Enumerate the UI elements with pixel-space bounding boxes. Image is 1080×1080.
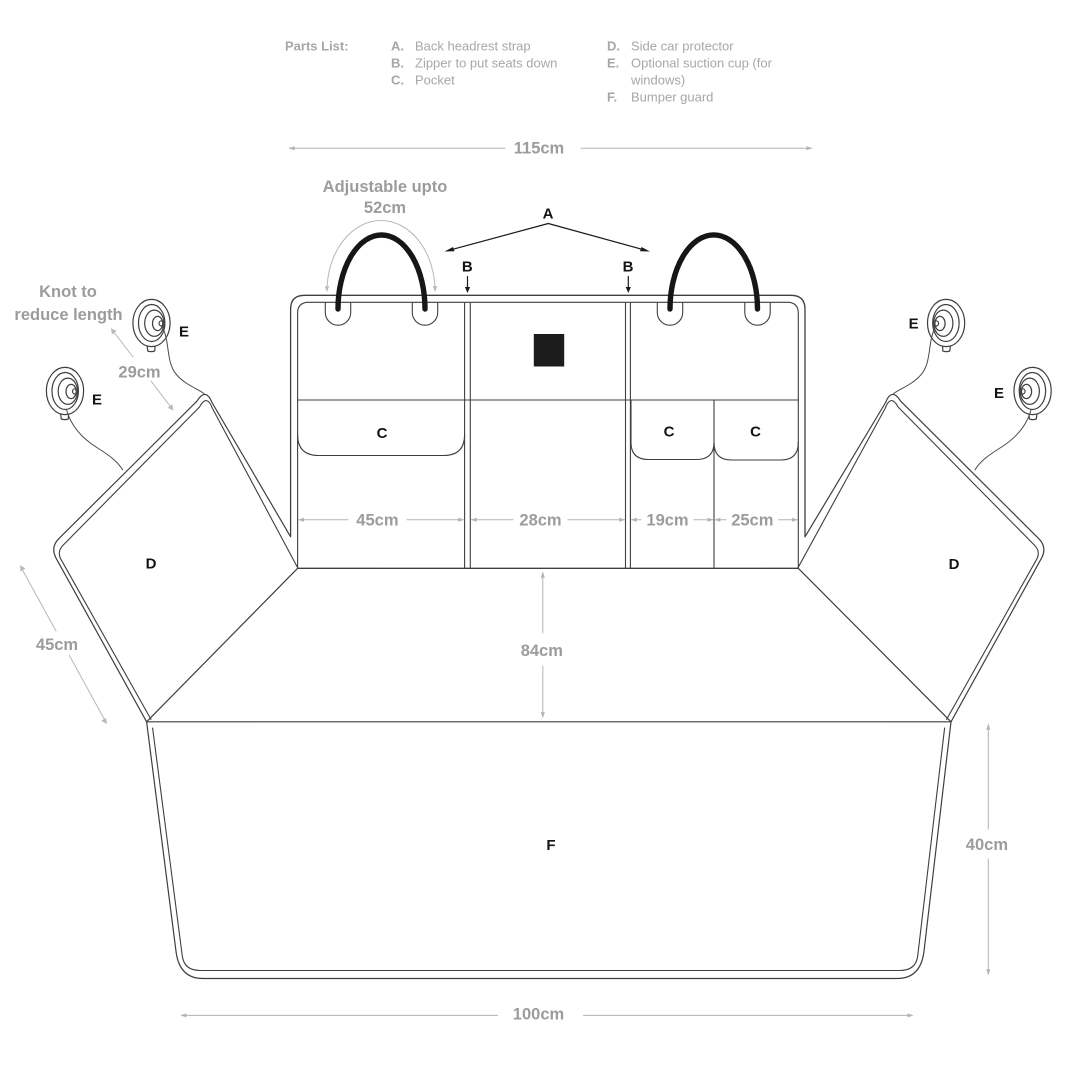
svg-text:Bumper guard: Bumper guard (631, 90, 713, 105)
svg-text:C.: C. (391, 73, 404, 88)
svg-text:Optional suction cup (for: Optional suction cup (for (631, 56, 773, 71)
svg-text:115cm: 115cm (514, 139, 564, 157)
svg-text:E.: E. (607, 56, 619, 71)
svg-text:E: E (92, 392, 102, 409)
svg-text:Side car protector: Side car protector (631, 39, 734, 54)
svg-text:Adjustable upto: Adjustable upto (323, 178, 448, 196)
svg-text:Back headrest strap: Back headrest strap (415, 39, 531, 54)
svg-text:E: E (994, 385, 1004, 402)
svg-text:Pocket: Pocket (415, 73, 455, 88)
svg-text:19cm: 19cm (646, 512, 688, 530)
svg-text:Knot to: Knot to (39, 283, 97, 301)
svg-text:A: A (543, 206, 554, 223)
svg-text:F.: F. (607, 90, 617, 105)
svg-text:C: C (750, 424, 761, 441)
svg-text:D.: D. (607, 39, 620, 54)
svg-text:E: E (909, 316, 919, 333)
svg-text:Parts List:: Parts List: (285, 39, 349, 54)
svg-text:D: D (146, 556, 157, 573)
svg-text:28cm: 28cm (519, 512, 561, 530)
svg-text:C: C (377, 425, 388, 442)
svg-text:40cm: 40cm (966, 836, 1008, 854)
svg-text:29cm: 29cm (118, 363, 160, 381)
svg-text:B.: B. (391, 56, 404, 71)
svg-text:B: B (623, 259, 634, 276)
svg-text:84cm: 84cm (521, 642, 563, 660)
svg-text:A.: A. (391, 39, 404, 54)
svg-text:52cm: 52cm (364, 199, 406, 217)
svg-text:D: D (949, 556, 960, 573)
svg-text:E: E (179, 324, 189, 341)
svg-text:100cm: 100cm (513, 1006, 564, 1024)
svg-text:F: F (546, 837, 555, 854)
svg-text:25cm: 25cm (731, 512, 773, 530)
svg-text:B: B (462, 259, 473, 276)
svg-text:45cm: 45cm (36, 636, 78, 654)
svg-text:45cm: 45cm (356, 512, 398, 530)
svg-text:windows): windows) (630, 73, 685, 88)
svg-text:Zipper to put seats down: Zipper to put seats down (415, 56, 557, 71)
svg-text:C: C (664, 424, 675, 441)
svg-text:reduce length: reduce length (14, 306, 122, 324)
